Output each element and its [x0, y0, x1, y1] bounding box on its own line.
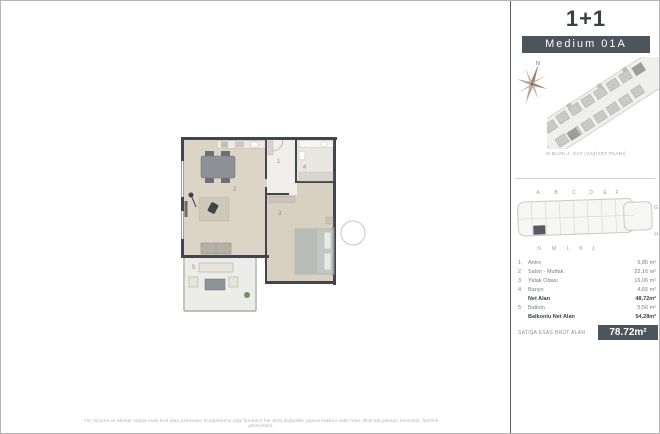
- diagram-letter: E: [603, 190, 607, 196]
- diagram-letter: N: [537, 246, 541, 252]
- diagram-letter: D: [589, 190, 593, 196]
- diagram-letter: J: [592, 246, 595, 252]
- diagram-letter: B: [554, 190, 558, 196]
- table-row: 5 Balkon 5,56 m²: [518, 305, 656, 314]
- gross-area-label: SATIŞA ESAS BRÜT ALAN: [518, 330, 598, 336]
- tv-unit: [185, 201, 188, 217]
- bed: [295, 227, 335, 275]
- window: [182, 211, 184, 239]
- table-row: 4 Banyo 4,65 m²: [518, 287, 656, 296]
- row-number: 1: [518, 260, 528, 266]
- area-table: 1 Antre 5,85 m² 2 Salon - Mutfak 22,16 m…: [518, 260, 656, 323]
- diagram-letter: A: [536, 190, 540, 196]
- corridor-floor: [297, 183, 335, 195]
- row-number: 4: [518, 287, 528, 293]
- room-area: 22,16 m²: [634, 269, 656, 275]
- kitchen-counter: [217, 141, 265, 149]
- sidebar-divider: [510, 1, 511, 434]
- room-area: 54,28m²: [636, 314, 657, 320]
- shoe-cabinet: [268, 141, 273, 155]
- diagram-letter: L: [567, 246, 570, 252]
- diagram-letter: H: [654, 232, 658, 238]
- diagram-letter: K: [579, 246, 583, 252]
- diagram-letter: G: [654, 205, 658, 211]
- room-name: Salon - Mutfak: [528, 269, 634, 275]
- diagram-letter: F: [615, 190, 618, 196]
- gross-area-badge: 78.72m²: [598, 325, 658, 340]
- diagram-letter: M: [552, 246, 556, 252]
- column-circle-marker: [341, 221, 365, 245]
- apartment-type-title: 1+1: [511, 6, 660, 32]
- room-name: Net Alan: [528, 296, 636, 302]
- sidebar-rule: [515, 178, 655, 179]
- room-name: Balkonlu Net Alan: [528, 314, 636, 320]
- room-name: Yatak Odası: [528, 278, 634, 284]
- room-area: 48,72m²: [636, 296, 657, 302]
- row-number: 3: [518, 278, 528, 284]
- room-area: 5,85 m²: [637, 260, 656, 266]
- brochure-page: 1 2 3 4 5 1+1 Medium 01A N: [0, 0, 660, 434]
- row-number: 2: [518, 269, 528, 275]
- compass-icon: N: [512, 57, 552, 105]
- site-plan-caption: M BLOK 4. KAT (VAZİYET PLANI): [511, 151, 660, 156]
- site-plan-illustration: [547, 57, 660, 149]
- diagram-letter: C: [572, 190, 576, 196]
- room-name: Banyo: [528, 287, 637, 293]
- row-number: 5: [518, 305, 528, 311]
- table-row-net-area-with-balcony: Balkonlu Net Alan 54,28m²: [518, 314, 656, 323]
- room-area: 16,06 m²: [634, 278, 656, 284]
- room-name: Antre: [528, 260, 637, 266]
- floor-plan-drawing: 1 2 3 4 5: [177, 131, 369, 319]
- nightstand: [326, 217, 333, 224]
- variant-badge: Medium 01A: [522, 36, 650, 53]
- table-row-net-area: Net Alan 48,72m²: [518, 296, 656, 305]
- compass-north-label: N: [536, 61, 540, 67]
- gross-area-row: SATIŞA ESAS BRÜT ALAN 78.72m²: [518, 325, 658, 340]
- room-area: 5,56 m²: [637, 305, 656, 311]
- rug-and-armchair: [199, 197, 229, 221]
- highlighted-unit-cell: [533, 225, 545, 234]
- window: [182, 161, 184, 197]
- room-name: Balkon: [528, 305, 637, 311]
- room-area: 4,65 m²: [637, 287, 656, 293]
- table-row: 1 Antre 5,85 m²: [518, 260, 656, 269]
- table-row: 3 Yatak Odası 16,06 m²: [518, 278, 656, 287]
- wardrobe: [269, 197, 295, 203]
- table-row: 2 Salon - Mutfak 22,16 m²: [518, 269, 656, 278]
- floor-plate-diagram: A B C D E F G H N M L K J: [512, 184, 660, 254]
- disclaimer-text: Yüz ölçümü ve alanlar satışa esas brüt a…: [81, 418, 441, 428]
- dining-table: [201, 151, 235, 183]
- sofa: [201, 243, 231, 254]
